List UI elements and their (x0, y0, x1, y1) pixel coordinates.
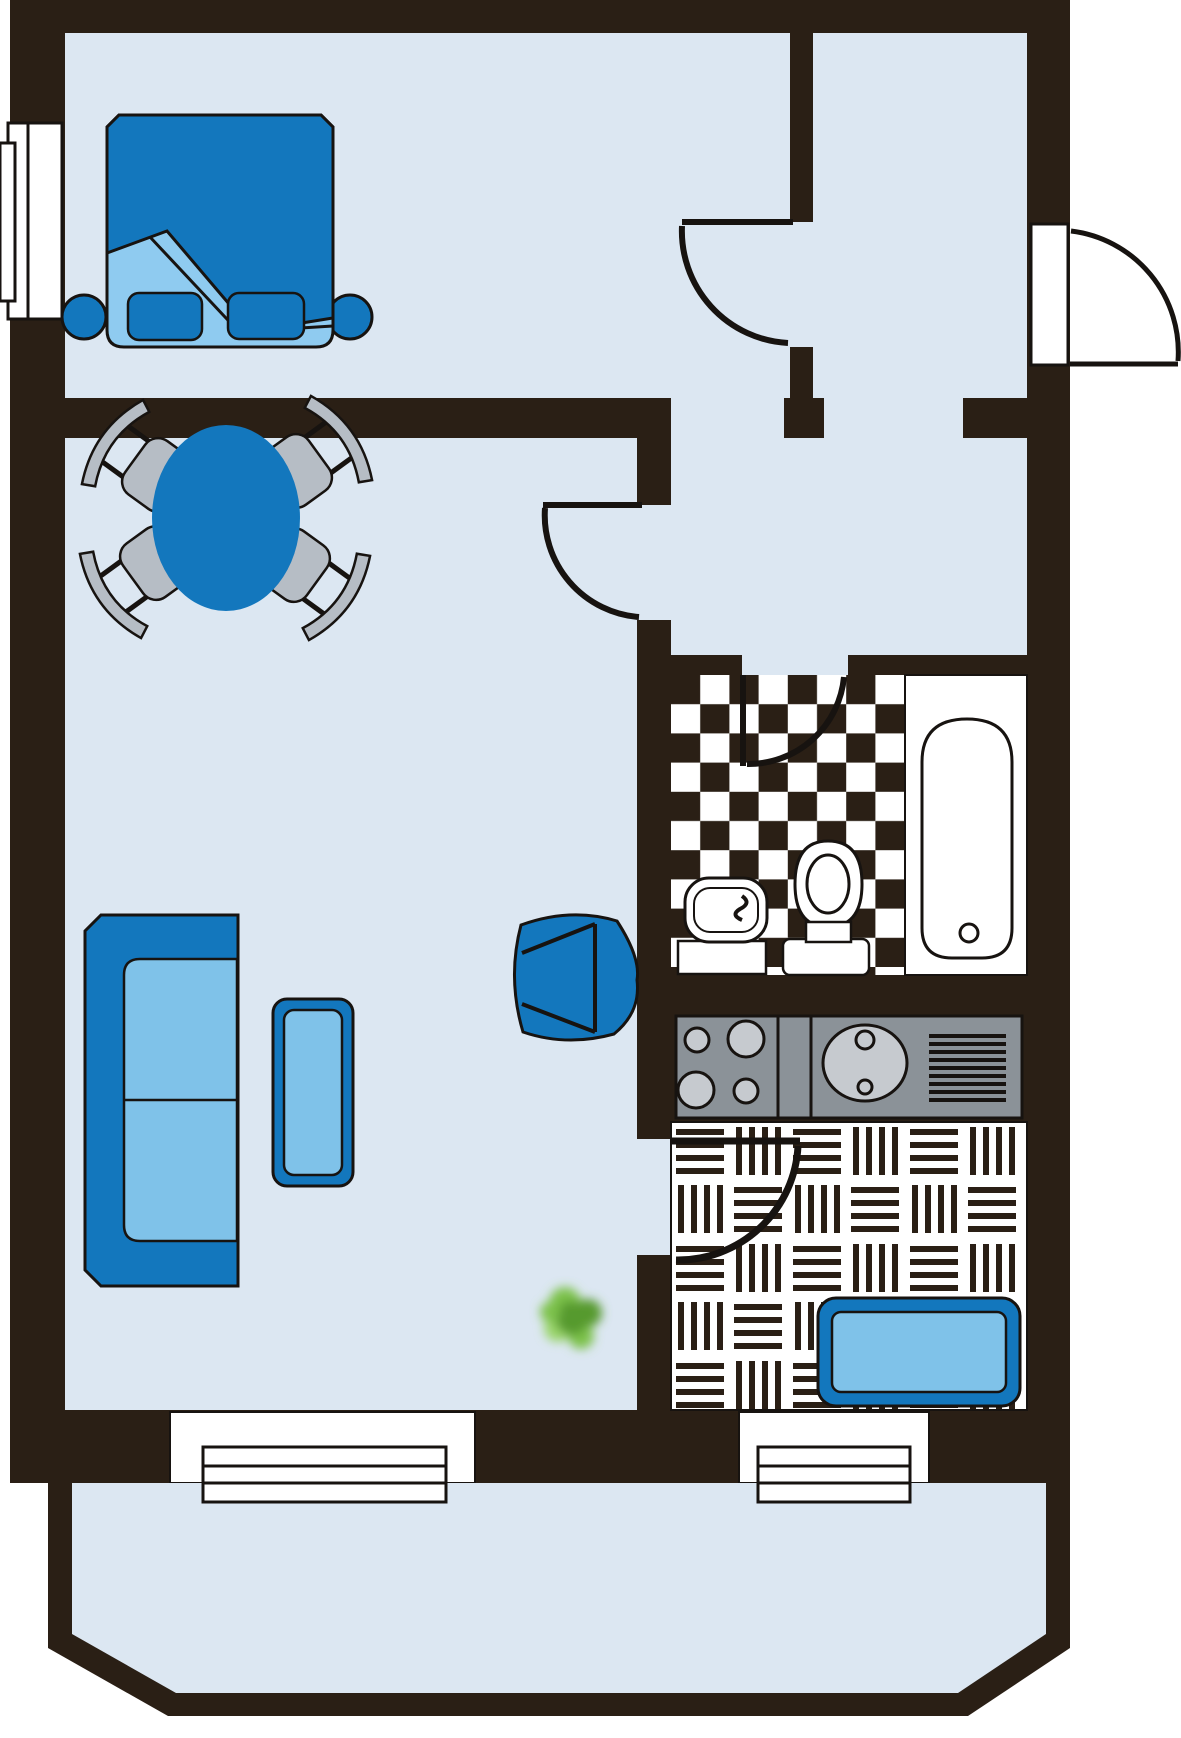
bedroom-corridor-opening (671, 398, 784, 438)
burner (685, 1028, 709, 1052)
stove (676, 1016, 778, 1118)
floor-plan (0, 0, 1181, 1738)
balcony-window-sill-left (203, 1483, 446, 1502)
burner (678, 1072, 714, 1108)
bedroom-left-window (0, 123, 62, 319)
burner (728, 1021, 764, 1057)
entry-hall-floor (813, 33, 1027, 398)
bathroom-doorway (742, 655, 848, 675)
door-swing-arc (1071, 231, 1178, 361)
armchair (514, 915, 637, 1040)
pillow (228, 293, 304, 339)
corridor-floor (671, 438, 1027, 655)
nightstand (62, 295, 106, 339)
kitchen-sink (823, 1025, 907, 1101)
burner (734, 1079, 758, 1103)
entry-door (1031, 224, 1178, 365)
sofa (85, 915, 238, 1286)
floor-plan-canvas (0, 0, 1181, 1738)
kitchen-table (818, 1298, 1020, 1406)
pillow (128, 293, 202, 340)
balcony (48, 1483, 1070, 1716)
balcony-window-sill-right (758, 1483, 910, 1502)
hall-corridor-opening (824, 398, 963, 438)
bathtub (922, 719, 1012, 958)
double-bed (107, 115, 333, 347)
nightstand (328, 295, 372, 339)
kitchen-doorway (637, 1139, 671, 1255)
kitchen (671, 1016, 1027, 1410)
washbasin (678, 878, 767, 974)
balcony-floor (72, 1483, 1046, 1693)
coffee-table (273, 999, 353, 1186)
window-sill (0, 143, 15, 301)
bedroom-furniture (62, 115, 372, 347)
drainboard (929, 1036, 1006, 1100)
bedroom-doorway (790, 222, 813, 347)
bathtub-drain (960, 924, 978, 942)
bathroom (671, 675, 1027, 975)
living-room-doorway (637, 505, 671, 620)
dining-table (152, 425, 300, 611)
